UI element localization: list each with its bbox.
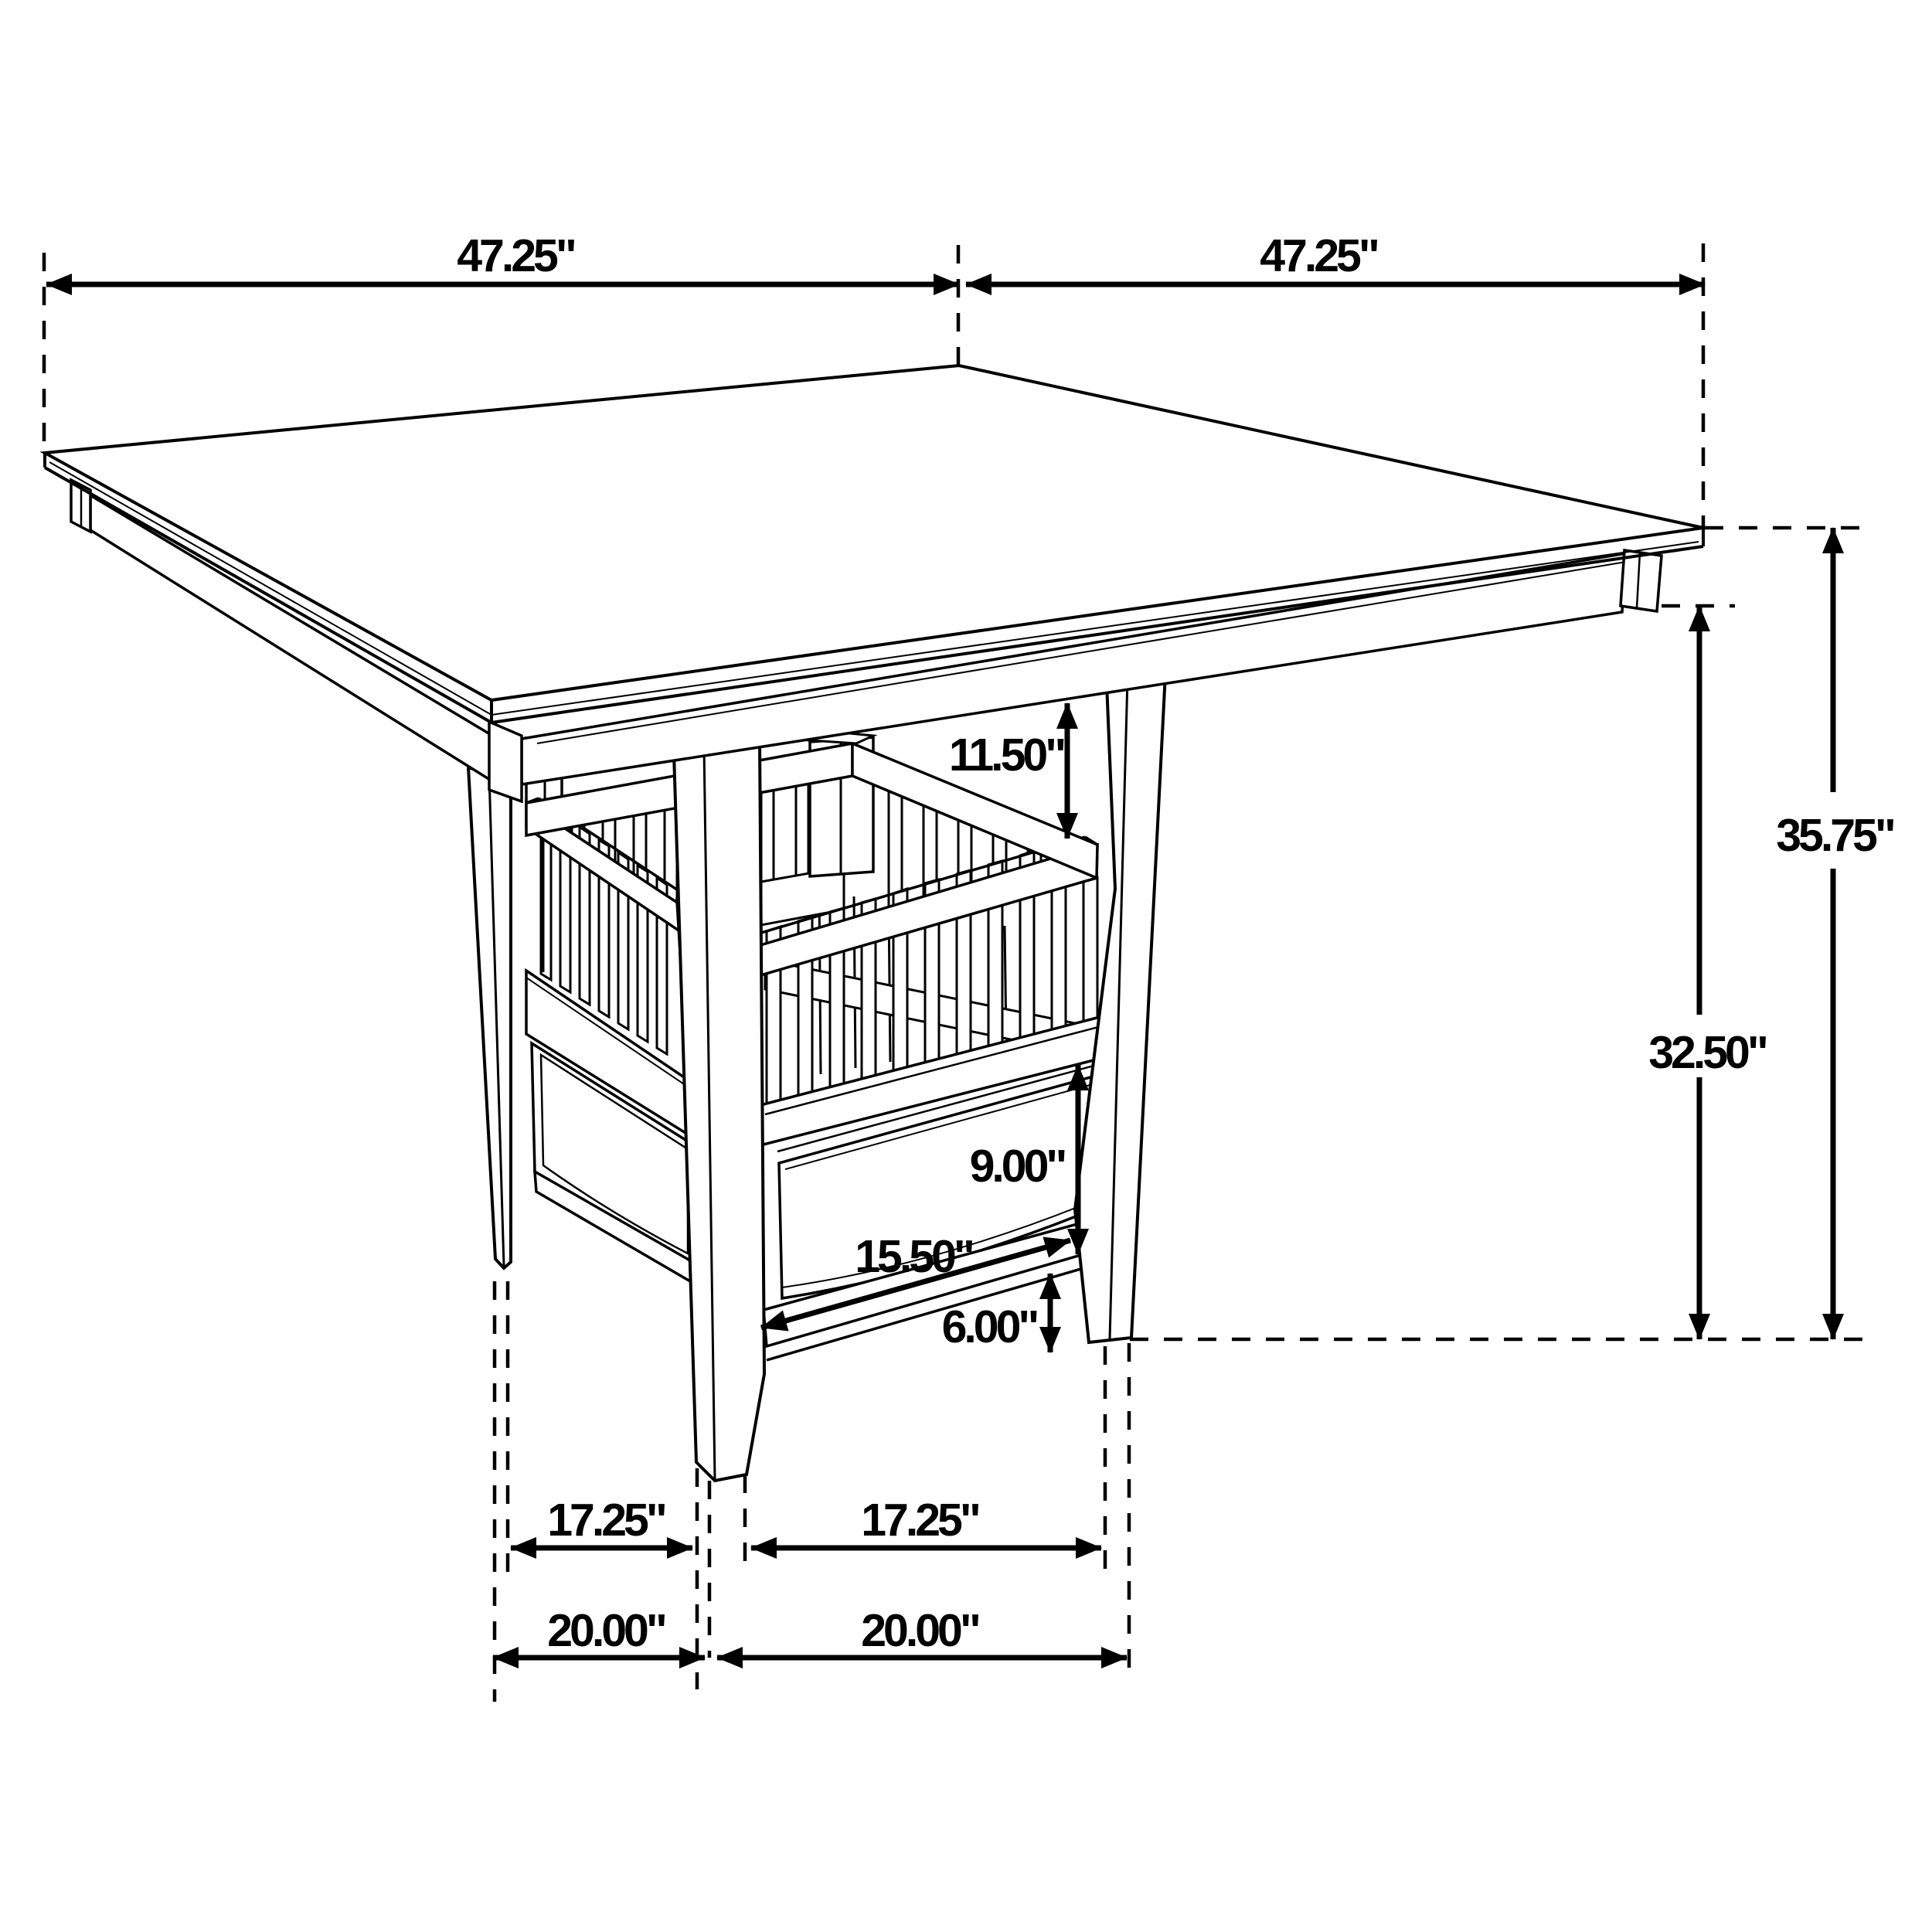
- svg-text:20.00": 20.00": [547, 1605, 665, 1656]
- svg-text:32.50": 32.50": [1648, 1027, 1767, 1078]
- svg-text:35.75": 35.75": [1776, 810, 1894, 861]
- svg-text:47.25": 47.25": [1260, 230, 1378, 281]
- svg-text:20.00": 20.00": [861, 1605, 979, 1656]
- svg-text:15.50": 15.50": [855, 1231, 973, 1282]
- svg-text:9.00": 9.00": [970, 1141, 1066, 1192]
- svg-text:47.25": 47.25": [457, 230, 575, 281]
- svg-text:6.00": 6.00": [942, 1301, 1038, 1352]
- svg-text:17.25": 17.25": [547, 1495, 665, 1546]
- svg-text:17.25": 17.25": [861, 1495, 979, 1546]
- svg-text:11.50": 11.50": [949, 730, 1064, 781]
